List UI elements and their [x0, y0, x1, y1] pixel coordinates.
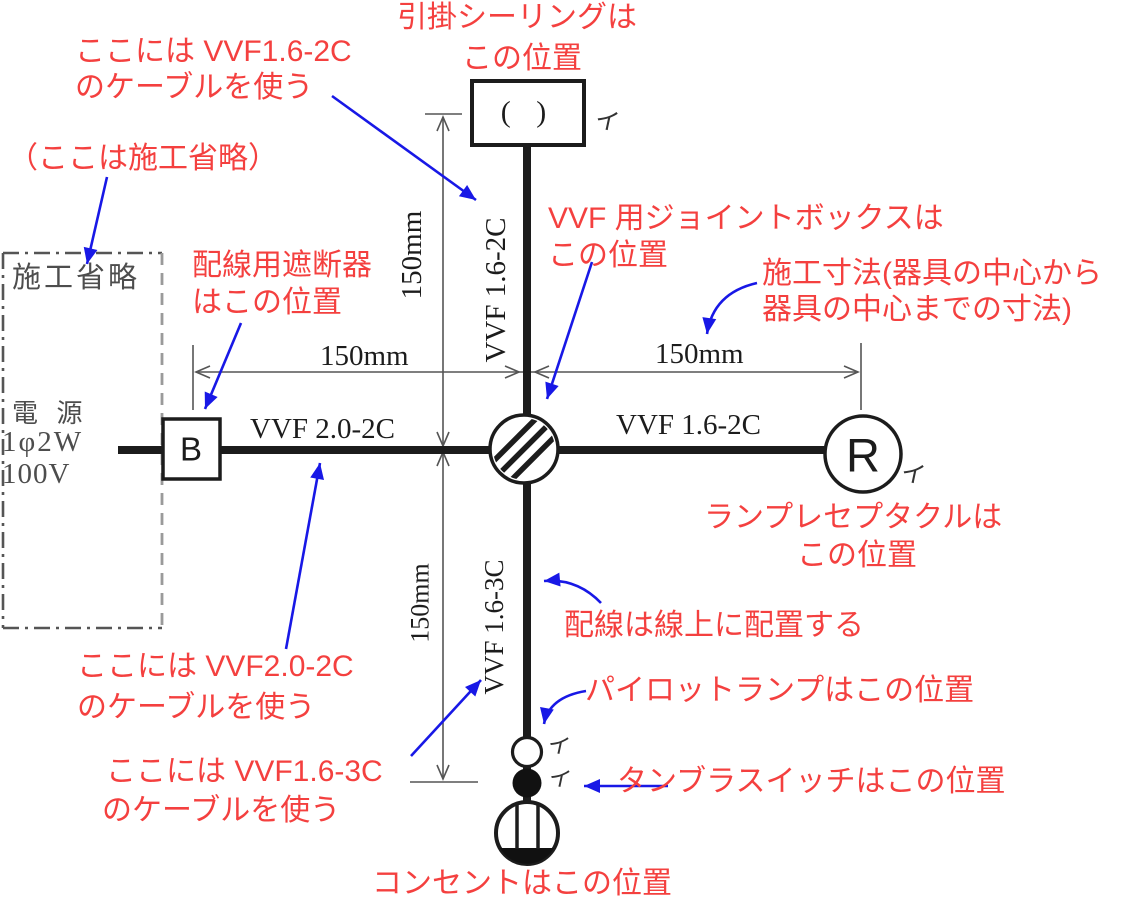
note-dimension-line2: 器具の中心までの寸法) — [762, 294, 1072, 326]
note-jointbox-line1: VVF 用ジョイントボックスは — [548, 203, 944, 235]
power-label-line3: 100V — [2, 459, 70, 489]
circuit-mark-ceiling: イ — [593, 108, 622, 138]
arrow-cable-bottom — [411, 680, 481, 756]
arrow-wiring-on-line — [544, 581, 601, 603]
dim-label-bottom: 150mm — [406, 563, 433, 642]
breaker-letter: B — [180, 433, 202, 468]
note-ceiling-line1: 引掛シーリングは — [397, 2, 637, 34]
note-breaker-line1: 配線用遮断器 — [192, 250, 372, 282]
note-cable-bottom-line1: ここには VVF1.6-3C — [106, 756, 383, 788]
joint-box-symbol — [481, 406, 567, 492]
cable-label-vvf16-3c-bottom: VVF 1.6-3C — [480, 559, 508, 694]
note-outlet: コンセントはこの位置 — [372, 868, 672, 900]
cable-label-vvf20-2c: VVF 2.0-2C — [250, 414, 395, 444]
arrow-cable-top — [332, 96, 476, 200]
circuit-mark-receptacle: イ — [899, 461, 928, 491]
note-breaker-line2: はこの位置 — [192, 287, 342, 319]
note-pilot-lamp: パイロットランプはこの位置 — [585, 675, 974, 707]
cable-label-vvf16-2c-top: VVF 1.6-2C — [481, 217, 511, 362]
arrow-omission — [87, 177, 107, 264]
dim-label-right: 150mm — [655, 339, 744, 369]
note-receptacle-line2: この位置 — [797, 540, 917, 572]
note-cable-left-line2: のケーブルを使う — [77, 692, 315, 724]
outlet-symbol — [496, 802, 558, 864]
dim-label-left: 150mm — [320, 341, 409, 371]
note-ceiling-line2: この位置 — [462, 43, 582, 75]
receptacle-letter: R — [846, 430, 880, 479]
ceiling-symbol-glyph: ( ) — [501, 96, 555, 128]
note-wiring-on-line: 配線は線上に配置する — [564, 610, 864, 642]
circuit-mark-pilot: イ — [546, 732, 572, 759]
pilot-lamp-symbol — [513, 738, 542, 767]
arrow-pilot-lamp — [544, 691, 586, 724]
arrow-dimension — [707, 283, 757, 334]
power-label-line2: 1φ2W — [2, 427, 83, 457]
note-cable-top-line2: のケーブルを使う — [75, 72, 313, 104]
note-cable-bottom-line2: のケーブルを使う — [102, 795, 340, 827]
power-label-line1: 電 源 — [12, 400, 89, 427]
tumbler-switch-symbol — [513, 769, 542, 798]
note-cable-top-line1: ここには VVF1.6-2C — [75, 36, 352, 68]
note-omission: （ここは施工省略） — [8, 143, 278, 175]
arrow-jointbox — [547, 262, 592, 399]
cable-label-vvf16-2c-right: VVF 1.6-2C — [616, 410, 761, 440]
arrow-cable-left — [286, 463, 320, 649]
note-receptacle-line1: ランプレセプタクルは — [704, 502, 1002, 534]
note-cable-left-line1: ここには VVF2.0-2C — [77, 651, 354, 683]
note-tumbler-switch: タンブラスイッチはこの位置 — [617, 766, 1006, 798]
dim-label-top: 150mm — [397, 211, 427, 300]
arrow-breaker — [205, 323, 241, 409]
circuit-mark-switch: イ — [547, 765, 573, 792]
note-jointbox-line2: この位置 — [548, 240, 668, 272]
wiring-diagram: 引掛シーリングは この位置 ここには VVF1.6-2C のケーブルを使う （こ… — [0, 0, 1132, 916]
omission-box-label: 施工省略 — [12, 263, 140, 293]
note-dimension-line1: 施工寸法(器具の中心から — [762, 258, 1102, 290]
